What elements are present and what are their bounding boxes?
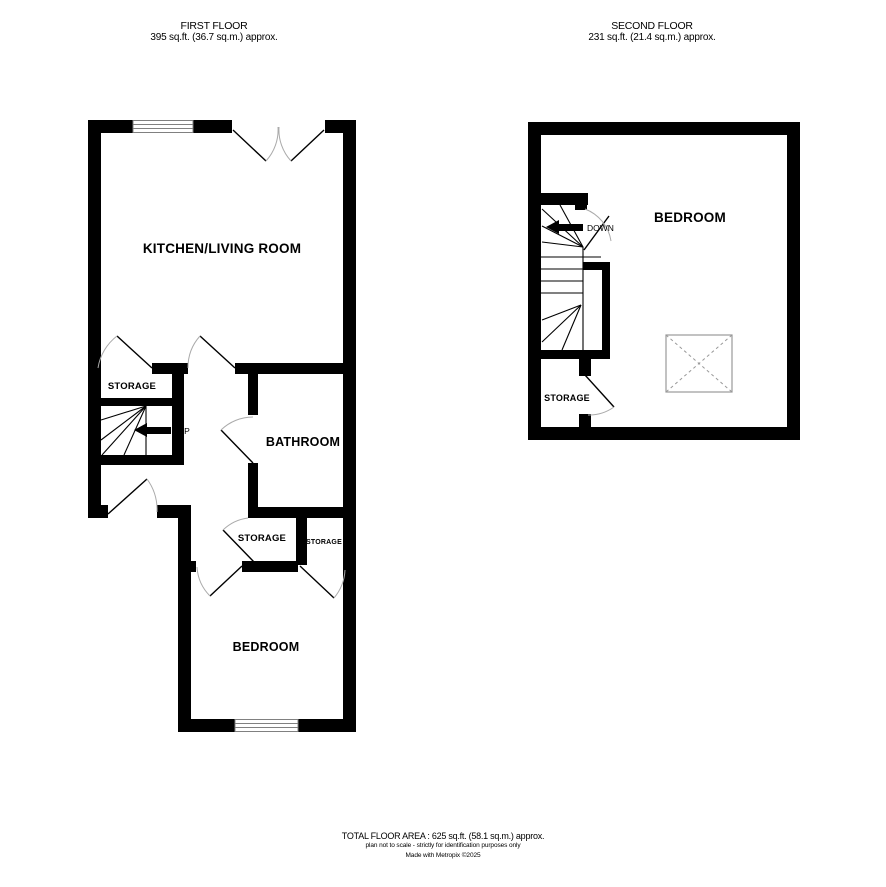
door-swing-arc (188, 336, 200, 368)
skylight-fixture (666, 335, 732, 392)
first-floor-doors (98, 127, 345, 598)
wall-segment (602, 262, 610, 359)
door-leaf (584, 216, 609, 250)
wall-segment (575, 193, 587, 210)
second-floor-plan: BEDROOM STORAGE DOWN (528, 122, 800, 440)
floorplan-page: FIRST FLOOR 395 sq.ft. (36.7 sq.m.) appr… (0, 0, 886, 887)
wall-segment (88, 398, 175, 406)
room-label-bedroom-second: BEDROOM (654, 210, 726, 225)
room-label-bathroom: BATHROOM (266, 435, 340, 449)
footer: TOTAL FLOOR AREA : 625 sq.ft. (58.1 sq.m… (0, 831, 886, 861)
first-floor-plan: KITCHEN/LIVING ROOM STORAGE BATHROOM STO… (88, 120, 356, 732)
door-leaf (233, 130, 266, 161)
room-label-storage-right: STORAGE (306, 539, 342, 546)
door-swing-arc (266, 127, 278, 161)
wall-segment (88, 505, 108, 518)
floorplan-drawing: KITCHEN/LIVING ROOM STORAGE BATHROOM STO… (0, 0, 886, 887)
door-leaf (210, 566, 242, 596)
door-swing-arc (147, 479, 157, 512)
window (235, 720, 298, 732)
wall-segment (157, 505, 191, 518)
door-leaf (221, 430, 253, 463)
winder-line (101, 406, 146, 440)
wall-segment (242, 561, 298, 572)
wall-segment (88, 363, 98, 374)
door-leaf (108, 479, 147, 514)
wall-segment (528, 122, 541, 440)
winder-line (542, 242, 583, 247)
first-floor-labels: KITCHEN/LIVING ROOM STORAGE BATHROOM STO… (108, 241, 342, 654)
wall-segment (579, 359, 591, 376)
credit-text: Made with Metropix ©2025 (0, 851, 886, 861)
door-leaf (291, 130, 324, 161)
door-swing-arc (221, 417, 253, 430)
wall-segment (343, 120, 356, 732)
room-label-hall-storage: STORAGE (108, 381, 156, 392)
door-swing-arc (588, 407, 614, 415)
stairs-down-label: DOWN (587, 223, 614, 233)
wall-segment (88, 455, 184, 465)
winder-line (542, 305, 581, 342)
wall-segment (172, 363, 184, 464)
up-arrow-icon (134, 423, 147, 437)
room-label-bedroom-first: BEDROOM (233, 640, 300, 654)
room-label-kitchen-living: KITCHEN/LIVING ROOM (143, 241, 301, 256)
door-swing-arc (223, 518, 248, 530)
room-label-storage-left: STORAGE (238, 533, 286, 544)
wall-segment (579, 414, 591, 427)
wall-segment (248, 363, 258, 415)
wall-segment (528, 350, 610, 359)
disclaimer-text: plan not to scale - strictly for identif… (0, 841, 886, 851)
wall-segment (248, 507, 356, 518)
first-floor-stairs (101, 406, 171, 455)
door-leaf (300, 566, 334, 598)
door-leaf (117, 336, 152, 368)
total-floor-area-text: TOTAL FLOOR AREA : 625 sq.ft. (58.1 sq.m… (0, 831, 886, 841)
room-label-storage-second: STORAGE (544, 393, 590, 403)
wall-segment (178, 561, 196, 572)
down-arrow-shaft (558, 224, 583, 231)
wall-segment (528, 122, 800, 135)
window (133, 121, 193, 133)
door-swing-arc (279, 127, 291, 161)
wall-segment (193, 120, 232, 133)
door-leaf (200, 336, 235, 368)
up-arrow-shaft (146, 427, 171, 434)
wall-segment (528, 427, 800, 440)
door-swing-arc (197, 567, 210, 596)
stairs-up-label: UP (178, 426, 190, 436)
wall-segment (298, 719, 356, 732)
wall-segment (178, 505, 191, 732)
wall-segment (787, 122, 800, 440)
